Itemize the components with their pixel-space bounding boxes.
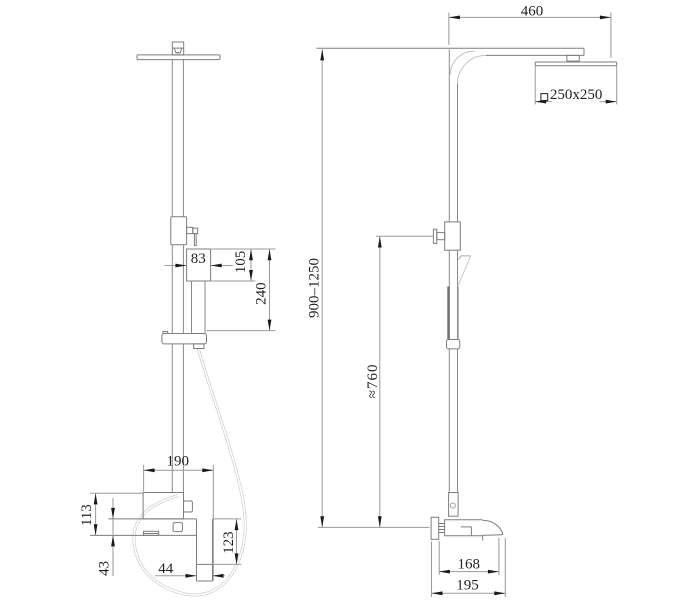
svg-text:168: 168	[457, 556, 480, 572]
svg-text:43: 43	[96, 561, 112, 576]
svg-text:105: 105	[233, 251, 249, 274]
svg-text:113: 113	[79, 504, 95, 526]
svg-text:44: 44	[158, 561, 174, 577]
svg-text:250x250: 250x250	[550, 87, 603, 103]
svg-text:240: 240	[254, 282, 270, 305]
svg-text:460: 460	[521, 3, 544, 19]
svg-text:≈760: ≈760	[365, 364, 381, 399]
svg-text:900–1250: 900–1250	[307, 258, 323, 318]
svg-text:83: 83	[191, 251, 206, 267]
svg-text:195: 195	[456, 578, 479, 594]
svg-text:123: 123	[221, 531, 237, 554]
svg-text:190: 190	[167, 454, 190, 470]
